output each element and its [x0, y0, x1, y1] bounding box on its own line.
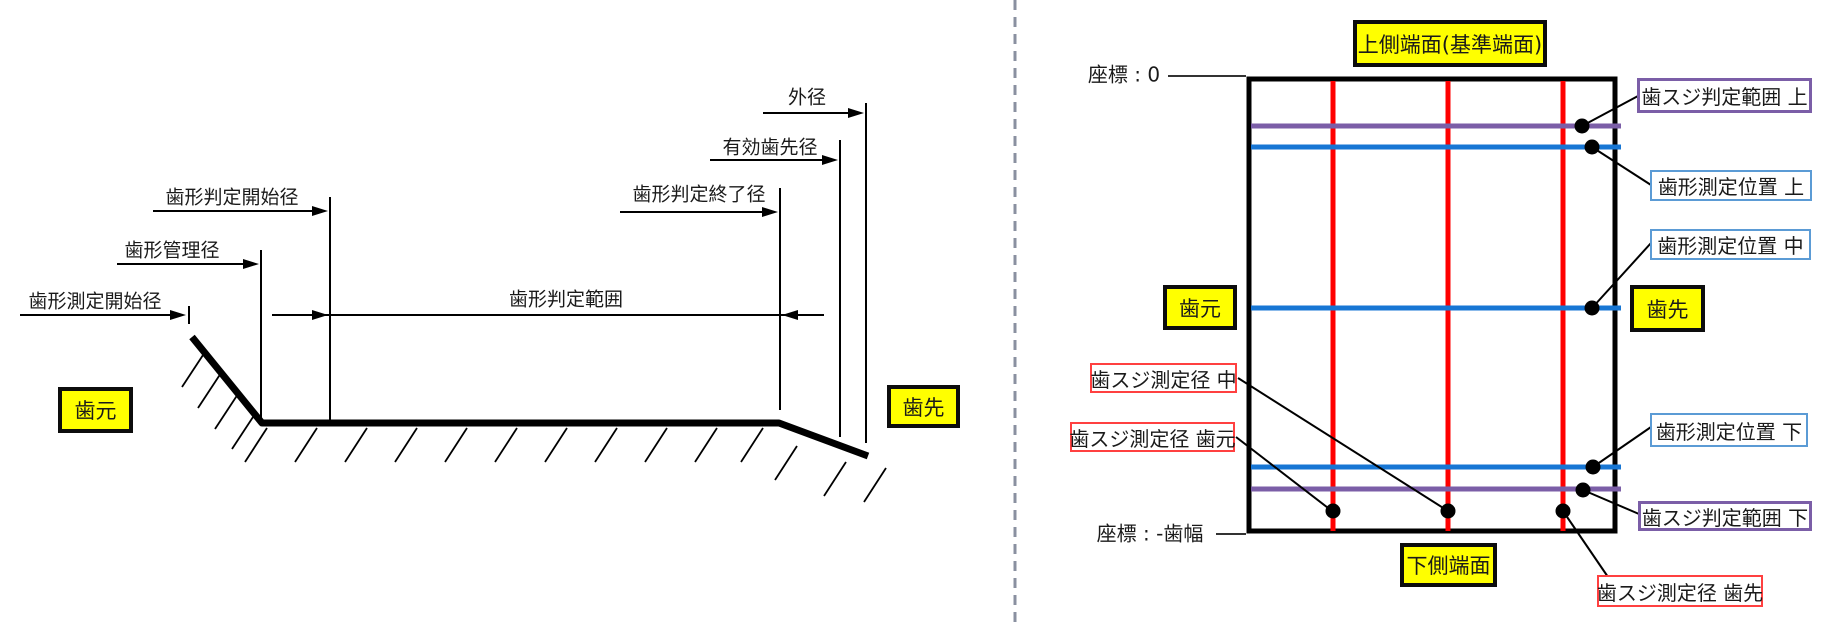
profile-measure-pos-upper-tag: 歯形測定位置 上 [1650, 170, 1812, 201]
gear-measurement-diagram: 外径 有効歯先径 歯形判定終了径 歯形判定開始径 歯形管理径 歯形測定開始径 歯… [0, 0, 1833, 629]
profile-judge-end-diameter-label: 歯形判定終了径 [632, 180, 765, 207]
coordinate-zero-label: 座標 : 0 [1088, 59, 1160, 88]
profile-measure-pos-middle-tag: 歯形測定位置 中 [1650, 229, 1811, 260]
right-tooth-root-tag: 歯元 [1163, 285, 1237, 330]
profile-judge-range-dimension [272, 310, 824, 320]
outer-diameter-label: 外径 [788, 83, 826, 110]
lower-end-face-tag: 下側端面 [1400, 543, 1497, 587]
right-tooth-tip-tag: 歯先 [1630, 285, 1705, 332]
profile-measure-pos-lower-tag: 歯形測定位置 下 [1650, 413, 1808, 447]
coordinate-facewidth-label: 座標 : -歯幅 [1097, 518, 1204, 547]
tooth-profile-line [192, 337, 868, 456]
outer-diameter-arrow [763, 108, 864, 118]
profile-measure-start-diameter-label: 歯形測定開始径 [28, 287, 161, 314]
profile-control-diameter-label: 歯形管理径 [124, 236, 219, 263]
trace-judge-range-upper-tag: 歯スジ判定範囲 上 [1637, 78, 1812, 113]
profile-judge-start-diameter-label: 歯形判定開始径 [165, 183, 298, 210]
profile-judge-range-label: 歯形判定範囲 [509, 285, 623, 312]
profile-judge-end-diameter-arrow [620, 207, 778, 217]
left-tooth-root-tag: 歯元 [58, 387, 133, 433]
effective-tip-diameter-label: 有効歯先径 [722, 133, 817, 160]
trace-measure-dia-tip-tag: 歯スジ測定径 歯先 [1597, 575, 1763, 607]
trace-measure-dia-root-tag: 歯スジ測定径 歯元 [1070, 422, 1235, 452]
trace-measure-dia-middle-tag: 歯スジ測定径 中 [1090, 363, 1237, 393]
left-tooth-tip-tag: 歯先 [887, 385, 960, 428]
diagram-linework [0, 0, 1833, 629]
trace-judge-range-lower-tag: 歯スジ判定範囲 下 [1638, 501, 1812, 531]
upper-end-face-tag: 上側端面(基準端面) [1353, 20, 1547, 67]
